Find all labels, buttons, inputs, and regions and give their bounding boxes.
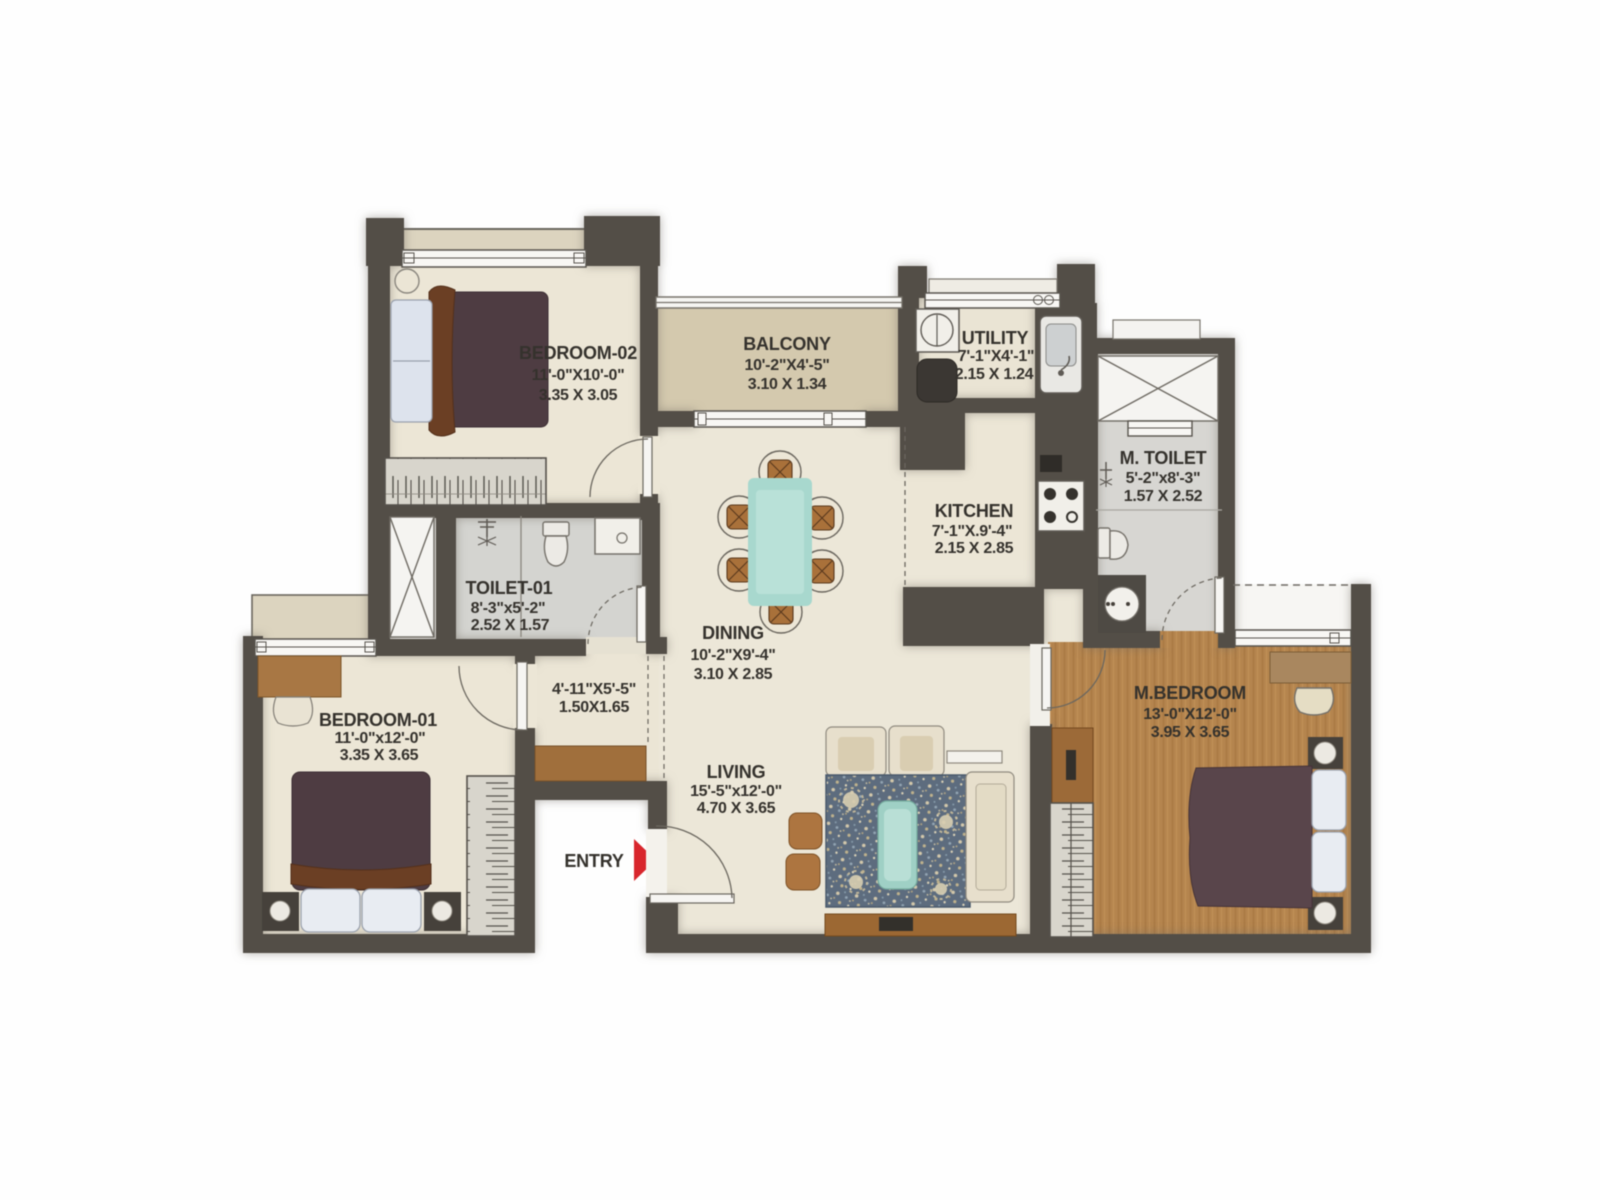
svg-text:BEDROOM-01: BEDROOM-01 (319, 710, 437, 730)
svg-text:BALCONY: BALCONY (743, 334, 831, 354)
svg-text:DINING: DINING (702, 623, 764, 643)
svg-text:1.50X1.65: 1.50X1.65 (559, 699, 630, 716)
svg-text:LIVING: LIVING (707, 762, 766, 782)
svg-text:5'-2"x8'-3": 5'-2"x8'-3" (1126, 470, 1201, 487)
svg-text:7'-1"X4'-1": 7'-1"X4'-1" (958, 348, 1034, 365)
svg-text:1.57 X 2.52: 1.57 X 2.52 (1124, 488, 1203, 505)
svg-text:2.15 X 2.85: 2.15 X 2.85 (935, 540, 1014, 557)
svg-text:3.10 X 1.34: 3.10 X 1.34 (748, 376, 827, 393)
svg-text:UTILITY: UTILITY (962, 328, 1029, 348)
svg-text:TOILET-01: TOILET-01 (466, 578, 553, 598)
svg-text:ENTRY: ENTRY (564, 851, 624, 871)
svg-text:3.10 X 2.85: 3.10 X 2.85 (694, 666, 773, 683)
svg-text:7'-1"X.9'-4": 7'-1"X.9'-4" (932, 523, 1013, 540)
svg-text:2.52 X 1.57: 2.52 X 1.57 (471, 617, 550, 634)
svg-text:M. TOILET: M. TOILET (1120, 448, 1207, 468)
svg-text:11'-0"X10'-0": 11'-0"X10'-0" (532, 367, 625, 384)
svg-text:BEDROOM-02: BEDROOM-02 (519, 343, 637, 363)
svg-text:2.15 X 1.24: 2.15 X 1.24 (955, 366, 1034, 383)
svg-text:M.BEDROOM: M.BEDROOM (1134, 683, 1246, 703)
svg-text:KITCHEN: KITCHEN (935, 501, 1014, 521)
svg-text:3.35 X 3.65: 3.35 X 3.65 (340, 747, 419, 764)
svg-text:10'-2"X9'-4": 10'-2"X9'-4" (690, 647, 775, 664)
svg-text:3.35 X 3.05: 3.35 X 3.05 (539, 387, 618, 404)
svg-text:15'-5"x12'-0": 15'-5"x12'-0" (690, 783, 782, 800)
svg-text:8'-3"x5'-2": 8'-3"x5'-2" (471, 600, 546, 617)
svg-text:4.70 X 3.65: 4.70 X 3.65 (697, 800, 776, 817)
svg-text:3.95 X 3.65: 3.95 X 3.65 (1151, 724, 1230, 741)
svg-text:4'-11"X5'-5": 4'-11"X5'-5" (552, 681, 636, 698)
svg-text:11'-0"x12'-0": 11'-0"x12'-0" (335, 730, 426, 747)
svg-text:13'-0"X12'-0": 13'-0"X12'-0" (1143, 706, 1237, 723)
svg-text:10'-2"X4'-5": 10'-2"X4'-5" (744, 357, 829, 374)
